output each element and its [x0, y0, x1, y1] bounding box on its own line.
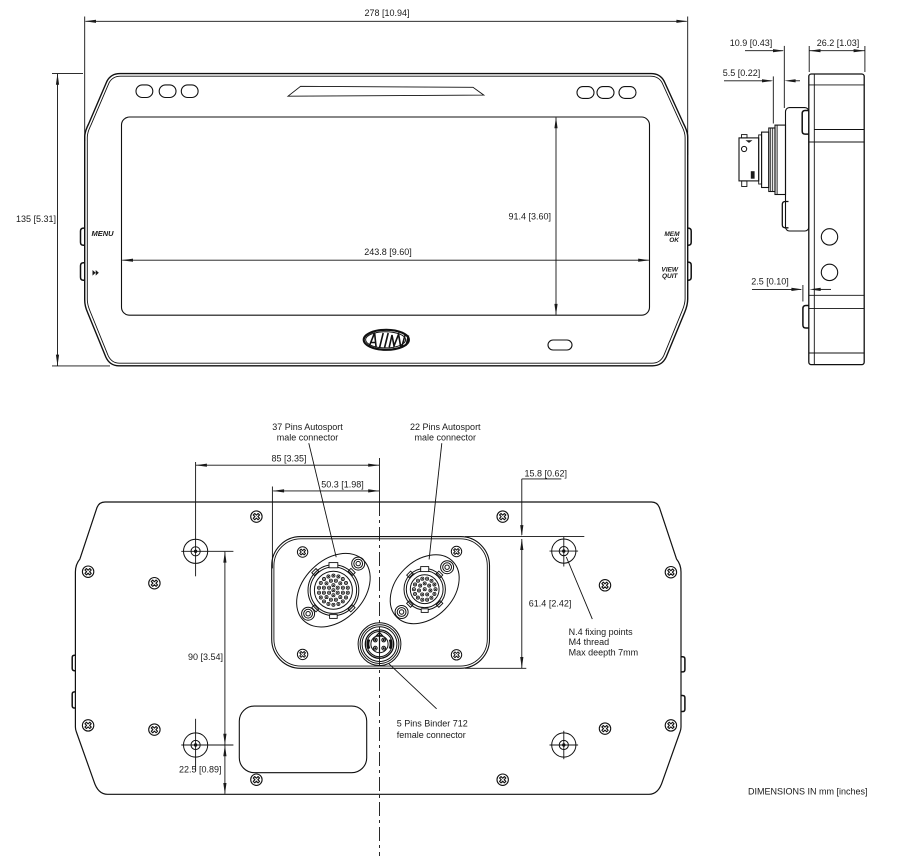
- svg-text:5 Pins Binder 712: 5 Pins Binder 712: [397, 718, 468, 728]
- svg-text:male connector: male connector: [415, 433, 477, 443]
- svg-text:female connector: female connector: [397, 730, 466, 740]
- svg-text:male connector: male connector: [277, 433, 339, 443]
- svg-text:135 [5.31]: 135 [5.31]: [16, 214, 56, 224]
- svg-text:90 [3.54]: 90 [3.54]: [188, 652, 223, 662]
- svg-text:37 Pins Autosport: 37 Pins Autosport: [272, 422, 343, 432]
- svg-text:15.8 [0.62]: 15.8 [0.62]: [525, 469, 568, 479]
- svg-text:50.3 [1.98]: 50.3 [1.98]: [321, 479, 364, 489]
- svg-text:85 [3.35]: 85 [3.35]: [271, 454, 306, 464]
- svg-text:5.5 [0.22]: 5.5 [0.22]: [723, 68, 761, 78]
- svg-text:22.5 [0.89]: 22.5 [0.89]: [179, 764, 222, 774]
- svg-text:OK: OK: [669, 237, 680, 244]
- svg-text:26.2 [1.03]: 26.2 [1.03]: [817, 38, 860, 48]
- svg-text:61.4 [2.42]: 61.4 [2.42]: [529, 599, 572, 609]
- svg-text:N.4 fixing points: N.4 fixing points: [569, 627, 634, 637]
- svg-text:278 [10.94]: 278 [10.94]: [364, 8, 409, 18]
- svg-text:22 Pins Autosport: 22 Pins Autosport: [410, 422, 481, 432]
- svg-text:Max deepth 7mm: Max deepth 7mm: [569, 647, 639, 657]
- svg-text:M4 thread: M4 thread: [569, 637, 610, 647]
- svg-text:QUIT: QUIT: [662, 273, 679, 280]
- svg-text:10.9 [0.43]: 10.9 [0.43]: [730, 38, 773, 48]
- svg-text:DIMENSIONS IN mm [inches]: DIMENSIONS IN mm [inches]: [748, 787, 868, 797]
- svg-text:91.4 [3.60]: 91.4 [3.60]: [508, 212, 551, 222]
- svg-text:2.5 [0.10]: 2.5 [0.10]: [751, 277, 789, 287]
- svg-text:MENU: MENU: [92, 229, 115, 238]
- svg-text:243.8 [9.60]: 243.8 [9.60]: [364, 247, 412, 257]
